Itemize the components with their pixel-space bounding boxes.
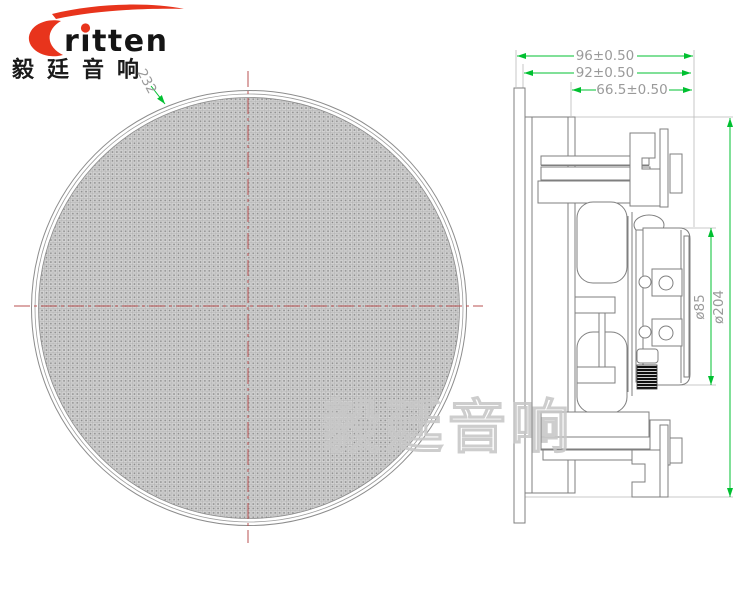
part-magnet-back-plate [684, 236, 689, 377]
part-basket-window-top [577, 202, 627, 283]
logo-swoosh-arc-icon [52, 5, 184, 19]
part-bottom-side-block [670, 438, 682, 463]
part-terminal-top-hole [659, 276, 673, 290]
ceiling-speaker-drawing-page: ritten 毅廷音响 232 [0, 0, 750, 600]
dim-rear-depth-label: 66.5±0.50 [596, 82, 667, 98]
part-top-plate [660, 129, 668, 207]
logo-e-crescent-icon [29, 20, 63, 56]
logo-chinese-name: 毅廷音响 [11, 57, 152, 83]
watermark: 毅廷音响 [322, 393, 574, 461]
technical-drawing: ritten 毅廷音响 232 [0, 0, 750, 600]
part-bottom-plate [660, 425, 668, 497]
dim-total-depth-label: 96±0.50 [576, 48, 635, 64]
part-basket-bar-top [575, 297, 615, 313]
part-bottom-mounting-dog [632, 450, 660, 497]
part-terminal-top-pin [639, 276, 651, 288]
logo-i-dot-icon [81, 23, 90, 32]
part-top-clamp-slab3 [538, 181, 632, 203]
front-view: 232 [14, 66, 483, 543]
part-top-side-block [670, 154, 682, 193]
dim-magnet-diameter-label: ø85 [692, 294, 708, 319]
part-terminal-bottom-pin [639, 326, 651, 338]
part-voice-coil-hatch [637, 365, 657, 389]
part-coil-former [637, 349, 658, 363]
part-basket-connector [599, 313, 605, 367]
part-basket-bar-bottom [577, 367, 615, 383]
dim-cutout-diameter-label: ø204 [711, 290, 727, 324]
part-terminal-bottom-hole [659, 326, 673, 340]
dim-body-depth-label: 92±0.50 [576, 65, 635, 81]
brand-logo: ritten 毅廷音响 [11, 5, 184, 83]
